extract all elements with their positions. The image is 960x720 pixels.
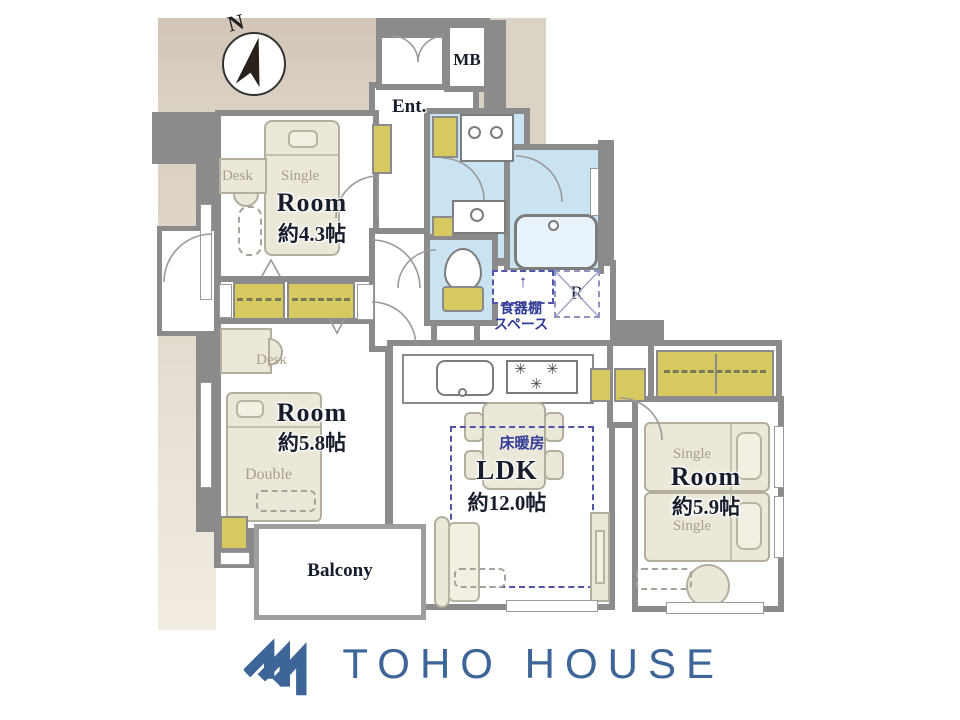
kitchen-faucet — [458, 388, 467, 397]
balcony-side-window — [220, 552, 250, 565]
fridge-label: R — [554, 270, 600, 318]
washer-space — [432, 116, 458, 158]
room2-size: 約5.8帖 — [258, 427, 366, 457]
closet-strip-cabinet — [357, 284, 374, 320]
room3-ghost-box — [636, 568, 692, 590]
room2-name: Room — [266, 398, 358, 428]
toho-house-logo-text: TOHO HOUSE — [342, 640, 724, 688]
room1-closet — [233, 282, 285, 320]
room1-bed-line — [266, 154, 338, 156]
room2-desk-label: Desk — [256, 352, 287, 369]
wash-unit — [460, 114, 514, 162]
toilet-tank — [442, 286, 484, 312]
cupboard-label-line2: スペース — [483, 314, 559, 334]
wash-unit-dial2 — [490, 126, 503, 139]
bathtub-drain — [548, 220, 559, 231]
west-window — [200, 382, 212, 488]
room2-bed-ghost — [256, 490, 316, 512]
room3-bed-bottom-label: Single — [662, 518, 722, 535]
rug-ghost-box — [454, 568, 506, 588]
room3-east-window — [774, 426, 784, 488]
closet-strip-cabinet — [219, 284, 232, 318]
shoe-cabinet — [372, 124, 392, 174]
room2-closet — [287, 282, 355, 320]
stove-burner-icon: ✳ — [530, 375, 543, 394]
room3-name: Room — [662, 462, 750, 492]
room3-closet — [656, 350, 774, 398]
corridor-closet — [614, 368, 646, 402]
entrance-label: Ent. — [392, 96, 426, 118]
powder-cabinet — [432, 216, 454, 238]
room3-bed-top-label: Single — [662, 446, 722, 463]
ldk-south-window — [506, 600, 598, 612]
room3-south-window — [666, 602, 764, 614]
room3-size: 約5.9帖 — [658, 491, 754, 521]
room1-size: 約4.3帖 — [260, 218, 364, 248]
mb-label: MB — [444, 50, 490, 70]
west-window — [200, 204, 212, 300]
stove-burner-icon: ✳ — [514, 360, 527, 379]
room1-bed-label: Single — [281, 168, 319, 185]
floor-heating-label: 床暖房 — [450, 432, 594, 453]
balcony-label: Balcony — [254, 560, 426, 582]
room2-bed-label: Double — [245, 466, 292, 484]
toho-house-logo-icon — [244, 622, 320, 706]
room2-pillow — [236, 400, 264, 418]
sofa-seat — [448, 522, 480, 602]
room1-chair-ghost — [238, 206, 262, 256]
toho-house-logo: TOHO HOUSE — [244, 614, 724, 714]
wash-unit-dial — [468, 126, 481, 139]
bath-window — [590, 168, 599, 216]
stove-burner-icon: ✳ — [546, 360, 559, 379]
ldk-size: 約12.0帖 — [442, 487, 572, 517]
tv-board-inner — [595, 530, 605, 584]
balcony-side-cabinet — [220, 516, 248, 550]
vanity-faucet — [470, 208, 484, 222]
room3-east-window — [774, 496, 784, 558]
kitchen-pantry-cabinet — [590, 368, 612, 402]
cupboard-arrow-icon: ↑ — [492, 272, 554, 292]
ldk-name: LDK — [452, 455, 562, 486]
room1-desk-label: Desk — [222, 168, 253, 185]
floor-plan-page: ↑ R ✳ ✳ ✳ — [0, 0, 960, 720]
room1-name: Room — [268, 188, 356, 218]
entrance-closet — [376, 32, 448, 90]
compass: N — [220, 10, 300, 100]
room1-pillow — [288, 130, 318, 148]
